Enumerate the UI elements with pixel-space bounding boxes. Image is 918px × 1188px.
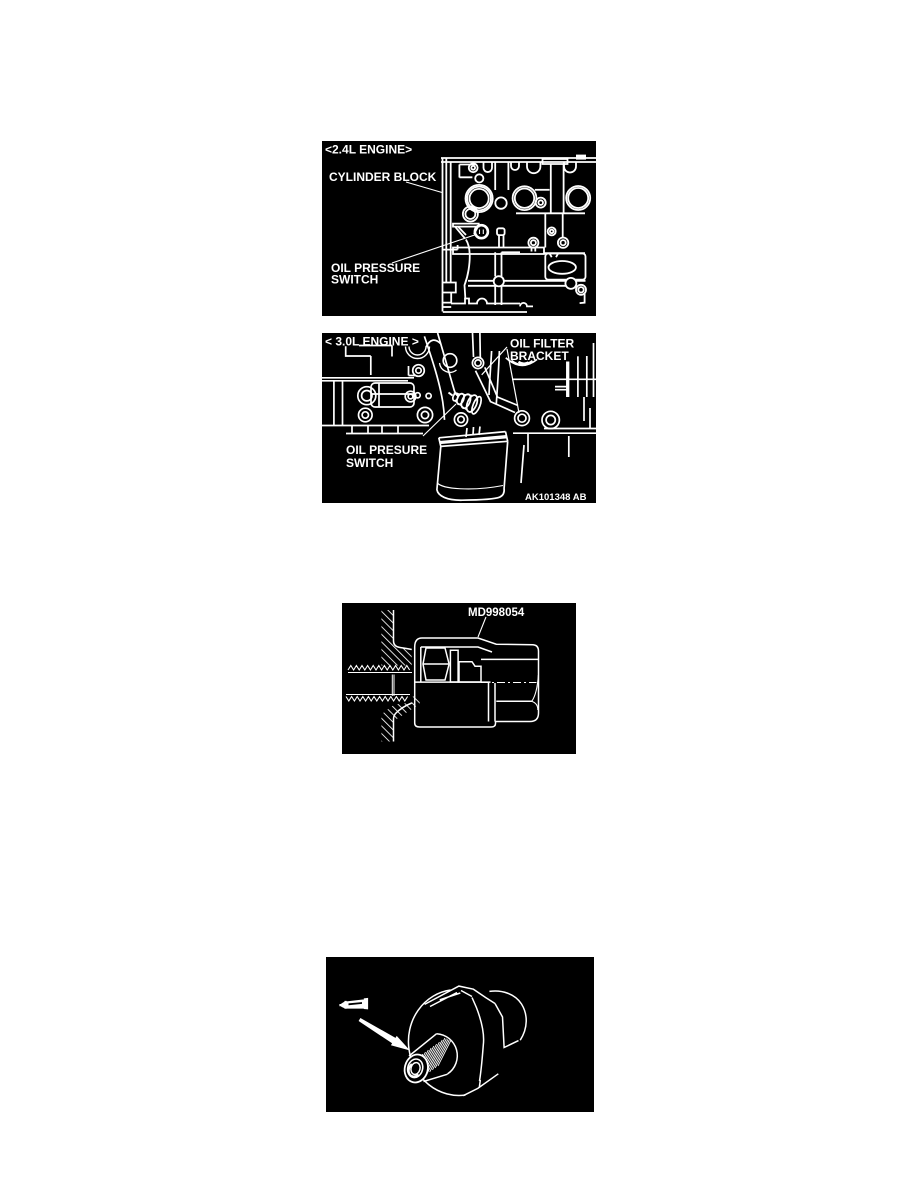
svg-text:BRACKET: BRACKET — [510, 349, 569, 363]
svg-text:SWITCH: SWITCH — [346, 456, 393, 470]
svg-text:MD998054: MD998054 — [468, 607, 525, 619]
svg-text:CYLINDER BLOCK: CYLINDER BLOCK — [329, 170, 437, 184]
svg-text:SWITCH: SWITCH — [331, 273, 378, 287]
svg-text:AK101348 AB: AK101348 AB — [525, 492, 587, 503]
svg-text:< 3.0L ENGINE >: < 3.0L ENGINE > — [325, 335, 419, 349]
svg-text:<2.4L ENGINE>: <2.4L ENGINE> — [325, 143, 412, 157]
svg-text:OIL PRESURE: OIL PRESURE — [346, 443, 427, 457]
